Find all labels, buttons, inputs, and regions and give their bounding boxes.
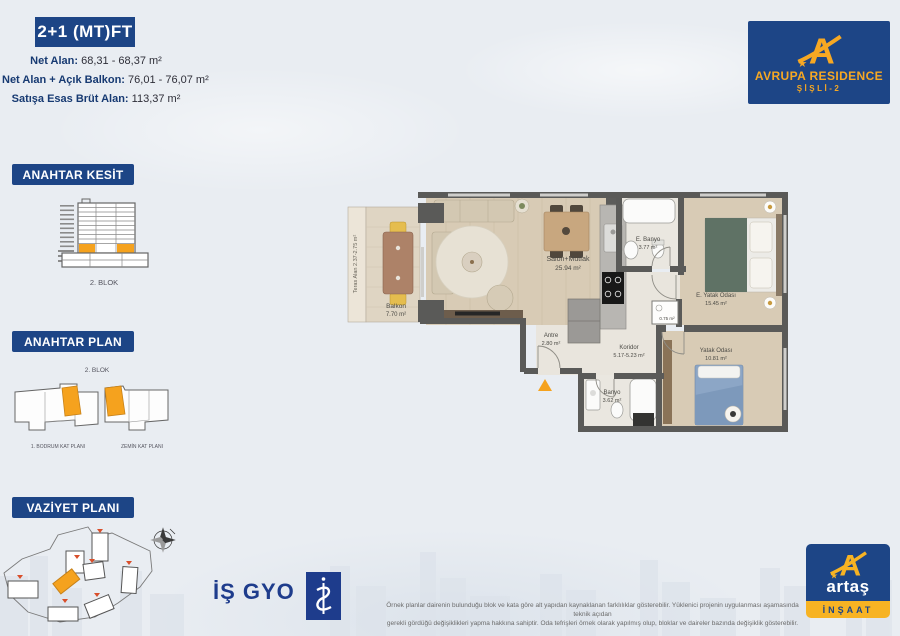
plan-caption: 2. BLOK — [85, 367, 110, 374]
net-area-line: Net Alan: 68,31 - 68,37 m² — [2, 52, 190, 71]
gross-area-value: 113,37 m² — [132, 93, 181, 105]
artas-insaat-logo: A ★ artaş İNŞAAT — [806, 544, 890, 618]
disclaimer-line-2: gerekli gördüğü değişiklikleri yapma hak… — [385, 619, 800, 628]
balkon-name: Balkon — [386, 303, 406, 310]
antre-name: Antre — [544, 333, 559, 339]
basement-floor-plan — [15, 384, 98, 430]
compass-icon — [152, 529, 175, 551]
yatak-name: Yatak Odası — [700, 348, 733, 354]
area-summary: Net Alan: 68,31 - 68,37 m² Net Alan + Aç… — [2, 52, 190, 109]
net-area-value: 68,31 - 68,37 m² — [81, 55, 162, 67]
section-header-anahtar-kesit: ANAHTAR KESİT — [12, 164, 134, 185]
antre-area: 2.80 m² — [542, 341, 561, 347]
disclaimer-text: Örnek planlar dairenin bulunduğu blok ve… — [385, 601, 800, 628]
salon-name: Salon+Mutfak — [547, 256, 590, 263]
avrupa-sub-text: ŞİŞLİ-2 — [797, 84, 842, 93]
isbank-icon — [306, 572, 341, 620]
section-header-anahtar-plan: ANAHTAR PLAN — [12, 331, 134, 352]
avrupa-a-mark-icon: A ★ — [793, 32, 845, 68]
net-area-label: Net Alan: — [30, 55, 78, 67]
gross-area-label: Satışa Esas Brüt Alan: — [12, 93, 129, 105]
banyo-area: 3.62 m² — [603, 398, 622, 404]
highlight-unit-left — [62, 386, 81, 416]
artas-name: artaş — [826, 577, 869, 597]
artas-sub: İNŞAAT — [806, 601, 890, 618]
banyo-name: Banyo — [603, 390, 621, 396]
highlight-floor-right — [117, 244, 134, 253]
building-section-diagram: 2. BLOK — [30, 192, 180, 297]
gross-area-line: Satışa Esas Brüt Alan: 113,37 m² — [2, 90, 190, 109]
unit-type-title: 2+1 (MT)FT — [35, 17, 135, 47]
ground-plan-label: ZEMİN KAT PLANI — [121, 443, 163, 450]
ebanyo-area: 3.77 m² — [639, 245, 658, 251]
eyatak-name: E. Yatak Odası — [696, 293, 736, 299]
entrance-arrow-icon — [538, 379, 552, 391]
brochure-page: 2+1 (MT)FT Net Alan: 68,31 - 68,37 m² Ne… — [0, 0, 900, 636]
section-header-vaziyet-plani: VAZİYET PLANI — [12, 497, 134, 518]
isbank-emblem — [306, 572, 341, 620]
disclaimer-line-1: Örnek planlar dairenin bulunduğu blok ve… — [385, 601, 800, 619]
star-icon: ★ — [797, 58, 807, 68]
balkon-area: 7.70 m² — [386, 312, 406, 318]
highlight-unit-right — [105, 386, 125, 416]
artas-logo-top: A ★ artaş — [806, 544, 890, 601]
terrace-note: Teras Alan 2.37-2.75 m² — [353, 235, 359, 294]
ebanyo-name: E. Banyo — [636, 237, 661, 243]
key-plan-diagram: 2. BLOK 1. BODRUM KAT PLANI ZEMİN KAT PL… — [5, 360, 190, 455]
artas-a-mark-icon: A ★ — [826, 549, 870, 579]
isgyo-logo-text: İŞ GYO — [213, 579, 295, 605]
koridor-name: Koridor — [619, 345, 638, 351]
avrupa-residence-logo: A ★ AVRUPA RESIDENCE ŞİŞLİ-2 — [748, 21, 890, 104]
shaft-area: 0.75 m² — [659, 316, 675, 321]
eyatak-area: 15.45 m² — [705, 301, 727, 307]
highlight-floor-left — [79, 244, 95, 253]
net-balcony-area-value: 76,01 - 76,07 m² — [128, 74, 209, 86]
avrupa-brand-text: AVRUPA RESIDENCE — [755, 69, 883, 83]
basement-plan-label: 1. BODRUM KAT PLANI — [31, 444, 85, 450]
koridor-area: 5.17-5.23 m² — [613, 353, 644, 359]
net-balcony-area-line: Net Alan + Açık Balkon: 76,01 - 76,07 m² — [2, 71, 190, 90]
ground-floor-plan — [105, 386, 168, 430]
yatak-area: 10.81 m² — [705, 356, 727, 362]
roof-detail — [82, 199, 90, 203]
salon-area: 25.94 m² — [555, 265, 581, 272]
site-plan-diagram — [0, 525, 190, 636]
net-balcony-area-label: Net Alan + Açık Balkon: — [2, 74, 125, 86]
kesit-caption: 2. BLOK — [90, 278, 118, 287]
floor-plan: Teras Alan 2.37-2.75 m² Balkon 7.70 m² S… — [340, 185, 800, 440]
